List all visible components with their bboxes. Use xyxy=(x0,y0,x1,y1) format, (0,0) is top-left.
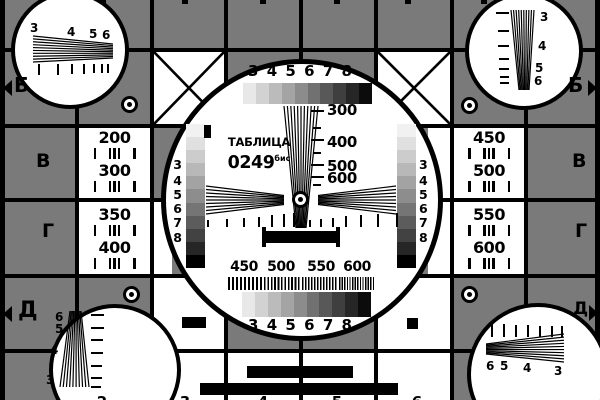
burst-label: 500 xyxy=(263,260,299,275)
corner-digit: 4 xyxy=(538,40,546,53)
strip-digit: 6 xyxy=(168,201,182,216)
horizontal-wedge-right xyxy=(318,185,396,215)
tick-mark xyxy=(101,64,103,73)
wedge-label: 300 xyxy=(327,103,357,118)
card-number: 0249бис xyxy=(225,149,293,173)
wedge-label: 600 xyxy=(327,171,357,186)
corner-digit: 3 xyxy=(540,11,548,24)
gray-step xyxy=(256,83,269,104)
row-letter-right: Б xyxy=(568,75,583,95)
gray-step xyxy=(319,292,332,317)
black-bar-mark xyxy=(182,317,206,328)
tick-mark xyxy=(226,219,228,227)
tick-mark xyxy=(539,326,541,337)
resolution-value: 500 xyxy=(454,162,524,180)
tick-mark xyxy=(499,58,509,60)
corner-digit: 4 xyxy=(523,362,531,375)
gray-step xyxy=(281,292,294,317)
gray-step xyxy=(186,176,205,189)
tick-mark xyxy=(309,220,311,227)
tick-mark xyxy=(515,325,517,337)
gray-step xyxy=(397,150,416,163)
burst-group xyxy=(339,277,374,290)
resolution-value: 200 xyxy=(79,129,150,147)
strip-digit: 5 xyxy=(168,187,182,202)
burst-group xyxy=(302,277,337,290)
test-card-uэit-0249: 200 300 350 400 450 500 550 600 xyxy=(0,0,600,400)
gray-step xyxy=(397,242,416,255)
grayscale-strip-right xyxy=(397,124,416,268)
scale-digit: 7 xyxy=(323,316,333,334)
tick-mark xyxy=(498,45,509,47)
tick-mark xyxy=(207,220,209,227)
tick-mark xyxy=(345,216,347,227)
gray-step xyxy=(397,189,416,202)
wedge-scale-tick xyxy=(313,184,321,186)
scale-digit: 6 xyxy=(304,62,314,80)
burst-label: 600 xyxy=(339,260,375,275)
black-bar-small xyxy=(247,366,353,378)
scale-digit: 4 xyxy=(267,62,277,80)
scale-digit: 7 xyxy=(323,62,333,80)
convergence-target-icon xyxy=(461,97,478,114)
strip-top-marker xyxy=(204,125,211,138)
gray-step xyxy=(359,83,372,104)
gray-step xyxy=(186,189,205,202)
gray-step xyxy=(397,216,416,229)
tick-mark xyxy=(396,213,398,227)
resolution-value: 350 xyxy=(79,206,150,224)
row-letter-right: В xyxy=(572,152,586,171)
gray-step xyxy=(186,242,205,255)
strip-digit: 7 xyxy=(419,215,433,230)
tick-mark xyxy=(498,30,509,32)
row-letter-right: Г xyxy=(575,222,587,241)
corner-digit: 6 xyxy=(534,75,542,88)
card-title: ТАБЛИЦА xyxy=(225,135,293,149)
center-target-icon xyxy=(292,191,309,208)
tick-mark xyxy=(91,314,104,316)
ibeam-cap-right xyxy=(336,227,340,247)
scale-digit: 6 xyxy=(304,316,314,334)
panel-right-bottom: 550 600 xyxy=(454,202,524,274)
wedge-label: 400 xyxy=(327,135,357,150)
card-number-suffix: бис xyxy=(274,154,290,163)
gray-step xyxy=(397,163,416,176)
tick-mark xyxy=(320,219,322,227)
corner-digit: 3 xyxy=(46,374,54,387)
gray-step xyxy=(186,229,205,242)
clipped-digit-nub xyxy=(405,0,411,4)
gray-step xyxy=(186,216,205,229)
gray-step xyxy=(307,292,320,317)
gray-step xyxy=(186,150,205,163)
gray-step xyxy=(243,83,256,104)
gray-step xyxy=(294,292,307,317)
gray-step xyxy=(295,83,308,104)
right-arrow-icon xyxy=(588,80,597,96)
gray-step xyxy=(242,292,255,317)
resolution-marks xyxy=(468,225,510,236)
resolution-value: 600 xyxy=(454,239,524,257)
clipped-digit: 6 xyxy=(410,392,424,400)
burst-label: 450 xyxy=(226,260,262,275)
gray-step xyxy=(308,83,321,104)
gray-step xyxy=(268,292,281,317)
tick-mark xyxy=(107,64,109,73)
gray-step xyxy=(345,292,358,317)
tick-mark xyxy=(377,214,379,227)
row-letter-left: В xyxy=(36,152,50,171)
resolution-marks xyxy=(94,148,136,159)
gray-step xyxy=(397,137,416,150)
corner-digit: 6 xyxy=(486,360,494,373)
gray-step xyxy=(397,229,416,242)
resolution-marks xyxy=(468,148,510,159)
wedge-scale-tick xyxy=(311,110,324,112)
tick-mark xyxy=(91,327,104,329)
wedge-scale-tick xyxy=(313,152,321,154)
strip-digit: 3 xyxy=(168,157,182,172)
tick-mark xyxy=(360,215,362,227)
burst-group xyxy=(264,277,300,290)
gray-step xyxy=(186,163,205,176)
tick-mark xyxy=(491,324,493,337)
resolution-marks xyxy=(94,225,136,236)
panel-right-top: 450 500 xyxy=(454,128,524,198)
tick-mark xyxy=(503,324,505,337)
tick-mark xyxy=(243,218,245,227)
tick-mark xyxy=(499,68,509,70)
resolution-value: 400 xyxy=(79,239,150,257)
panel-left-bottom: 350 400 xyxy=(79,202,150,274)
corner-digit: 4 xyxy=(67,26,75,39)
corner-digit: 5 xyxy=(55,323,63,336)
ibeam-cap-left xyxy=(262,227,266,247)
row-letter-left: Г xyxy=(42,222,54,241)
card-number-value: 0249 xyxy=(228,153,275,173)
tick-mark xyxy=(527,325,529,337)
gray-step xyxy=(358,292,371,317)
gray-step xyxy=(397,203,416,216)
wedge-scale-tick xyxy=(311,164,324,166)
tick-mark xyxy=(551,326,553,337)
gray-step xyxy=(397,176,416,189)
gray-step xyxy=(186,203,205,216)
tick-mark xyxy=(91,339,103,341)
resolution-marks xyxy=(94,181,136,192)
black-square-mark xyxy=(407,318,418,329)
burst-label: 550 xyxy=(303,260,339,275)
tick-mark xyxy=(91,386,101,388)
row-letter-left: Б xyxy=(14,75,29,95)
clipped-digit: 2 xyxy=(95,392,109,400)
tick-mark xyxy=(91,352,103,354)
top-scale-digits: 345678 xyxy=(248,62,352,80)
corner-digit: 3 xyxy=(30,22,38,35)
strip-digit: 8 xyxy=(168,230,182,245)
resolution-marks xyxy=(468,258,510,269)
tick-mark xyxy=(258,217,260,227)
tick-mark xyxy=(71,64,73,74)
horizontal-wedge-left xyxy=(206,185,284,215)
black-bar-wide xyxy=(200,383,398,395)
clipped-digit-nub xyxy=(100,0,106,4)
scale-digit: 8 xyxy=(342,316,352,334)
corner-digit: 5 xyxy=(500,360,508,373)
corner-digit: 4 xyxy=(50,344,58,357)
tick-mark xyxy=(91,377,102,379)
strip-digit: 7 xyxy=(168,215,182,230)
right-arrow-icon xyxy=(589,305,598,321)
clipped-digit-nub xyxy=(334,0,340,4)
convergence-target-icon xyxy=(461,286,478,303)
clipped-digit: 4 xyxy=(256,392,270,400)
scale-digit: 3 xyxy=(248,62,258,80)
wedge-scale-tick xyxy=(311,176,324,178)
bottom-scale-digits: 345678 xyxy=(248,316,352,334)
gray-step xyxy=(186,137,205,150)
row-letter-right: Д xyxy=(573,301,588,318)
tick-mark xyxy=(271,215,273,227)
gray-step xyxy=(186,255,205,268)
strip-digit: 4 xyxy=(168,173,182,188)
corner-digit: 6 xyxy=(102,29,110,42)
gray-step xyxy=(397,124,416,137)
clipped-digit: 5 xyxy=(330,392,344,400)
resolution-marks xyxy=(468,181,510,192)
scale-digit: 5 xyxy=(285,62,295,80)
corner-digit: 5 xyxy=(89,28,97,41)
tick-mark xyxy=(496,12,509,14)
tick-mark xyxy=(283,214,285,227)
clipped-digit-nub xyxy=(481,0,487,4)
tick-mark xyxy=(500,82,509,84)
clipped-digit-nub xyxy=(182,0,188,4)
resolution-value: 300 xyxy=(79,162,150,180)
gray-step xyxy=(186,124,205,137)
wedge-scale-tick xyxy=(313,127,321,129)
strip-digit: 8 xyxy=(419,230,433,245)
gray-step xyxy=(332,292,345,317)
tick-mark xyxy=(561,326,563,337)
corner-digit: 3 xyxy=(554,365,562,378)
strip-digit: 6 xyxy=(419,201,433,216)
grayscale-strip-left xyxy=(186,124,205,268)
scale-digit: 4 xyxy=(267,316,277,334)
gray-step xyxy=(255,292,268,317)
ibeam-bar xyxy=(266,231,336,243)
gray-step xyxy=(282,83,295,104)
tick-mark xyxy=(57,64,59,75)
tick-mark xyxy=(93,64,95,73)
resolution-marks xyxy=(94,258,136,269)
scale-digit: 5 xyxy=(285,316,295,334)
wedge-scale-tick xyxy=(311,139,324,141)
scale-digit: 8 xyxy=(342,62,352,80)
clipped-digit: 3 xyxy=(178,392,192,400)
strip-digit: 4 xyxy=(419,173,433,188)
resolution-value: 550 xyxy=(454,206,524,224)
tick-mark xyxy=(332,218,334,227)
gray-step xyxy=(397,255,416,268)
tick-mark xyxy=(91,365,102,367)
clipped-digit-nub xyxy=(260,0,266,4)
scale-digit: 3 xyxy=(248,316,258,334)
row-letter-left: Д xyxy=(18,300,38,322)
gray-step xyxy=(269,83,282,104)
tick-mark xyxy=(38,64,40,75)
convergence-target-icon xyxy=(123,286,140,303)
tick-mark xyxy=(500,76,509,78)
convergence-target-icon xyxy=(121,96,138,113)
burst-group xyxy=(228,277,262,290)
tick-mark xyxy=(293,213,295,227)
grayscale-bar-bottom xyxy=(242,292,371,317)
resolution-value: 450 xyxy=(454,129,524,147)
panel-left-top: 200 300 xyxy=(79,128,150,198)
tick-mark xyxy=(83,64,85,74)
left-arrow-icon xyxy=(3,80,12,96)
strip-digit: 3 xyxy=(419,157,433,172)
left-arrow-icon xyxy=(3,306,12,322)
strip-digit: 5 xyxy=(419,187,433,202)
